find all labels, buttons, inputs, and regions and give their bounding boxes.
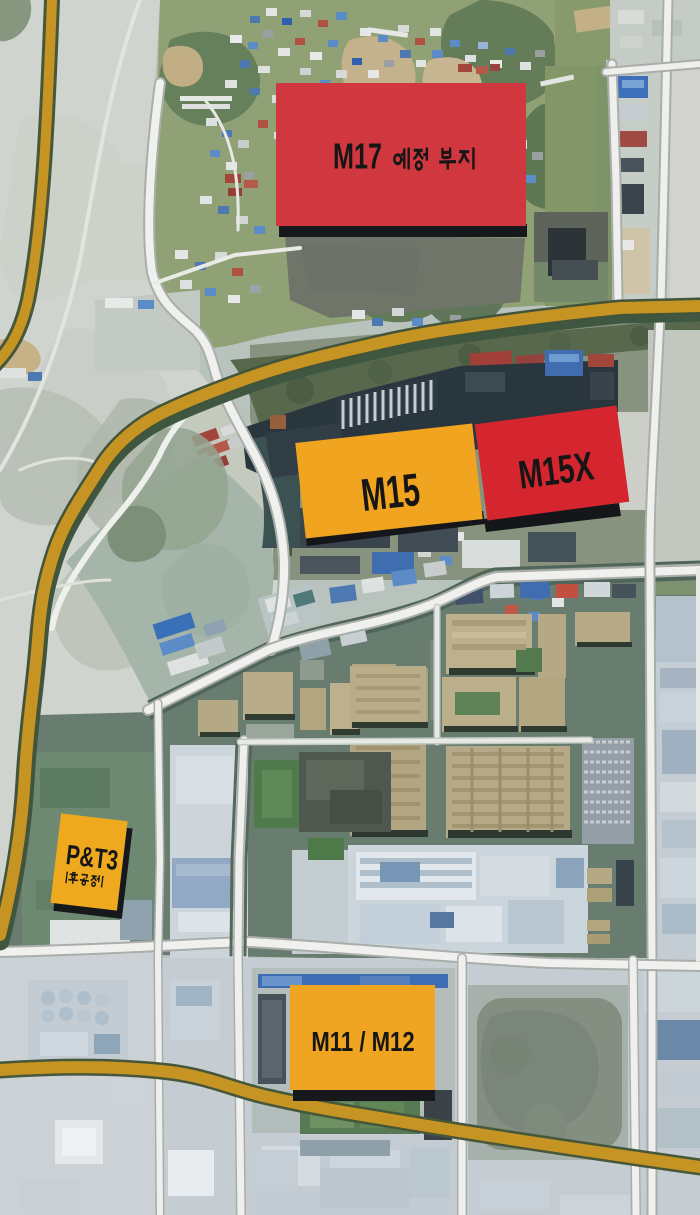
svg-text:P&T3: P&T3 xyxy=(64,840,120,877)
svg-text:M11 / M12: M11 / M12 xyxy=(311,1027,414,1058)
svg-text:M15: M15 xyxy=(359,465,423,522)
svg-text:M17: M17 xyxy=(333,136,382,177)
